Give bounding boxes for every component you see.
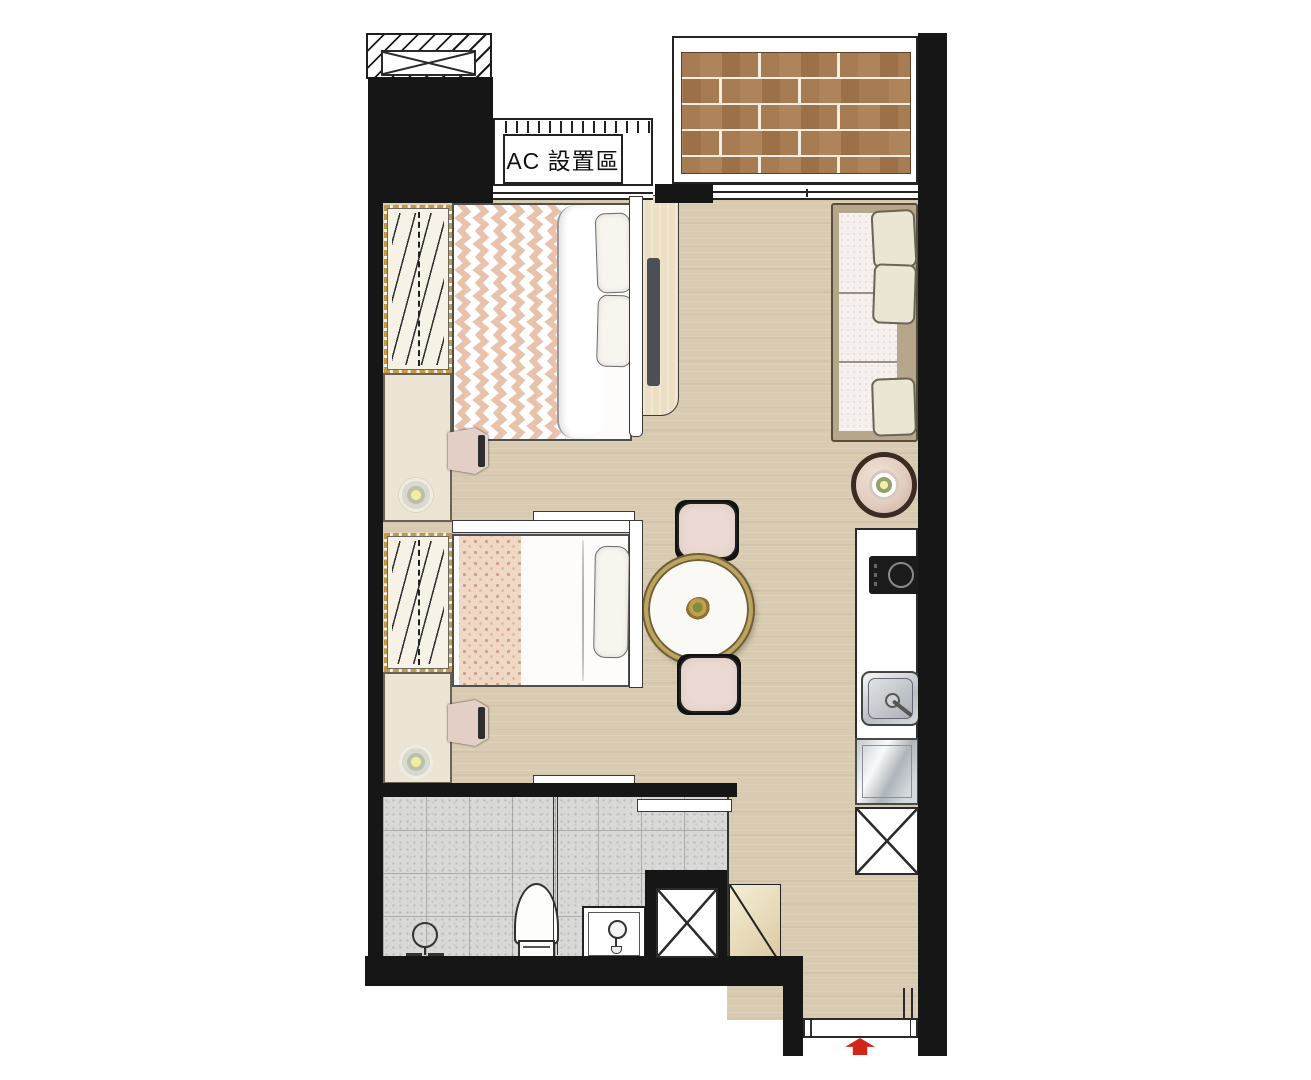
entry-door-frame-line-2	[911, 988, 913, 1018]
deck-plank-row	[682, 105, 910, 131]
dining-chair-top	[677, 502, 737, 559]
cooktop	[869, 556, 919, 594]
deck-plank-row	[682, 53, 910, 79]
deck-plank-row	[682, 131, 910, 157]
kitchen-x-cabinet	[855, 807, 919, 875]
vent-x-box	[381, 50, 476, 76]
bed-2-right-rail	[629, 520, 643, 688]
window-mullion	[806, 189, 808, 197]
sofa-pillow-2	[872, 263, 917, 324]
balcony	[672, 36, 918, 184]
door-stop-line	[910, 1020, 912, 1036]
shower-stem	[424, 947, 426, 955]
ac-grille-ticks	[505, 121, 651, 133]
bed-1-chevron-blanket	[454, 205, 566, 439]
balcony-deck	[681, 52, 911, 174]
bed-1-pillow-bottom	[596, 295, 633, 368]
wardrobe-2-rail	[418, 540, 420, 665]
ac-grille-line	[493, 118, 653, 120]
deck-plank-row	[682, 79, 910, 105]
cooktop-controls	[874, 564, 877, 586]
wardrobe-2	[384, 533, 452, 672]
wall-bottom	[365, 956, 803, 986]
bed-1-pillow-top	[595, 212, 633, 293]
dining-table-centerpiece	[686, 597, 712, 623]
entry-door-sill	[803, 1018, 918, 1038]
desk-lamp-2	[399, 745, 433, 779]
bed-2-pattern-blanket	[459, 536, 521, 685]
ac-recess-left-edge	[493, 120, 495, 186]
ac-area-label-box: AC 設置區	[503, 134, 623, 184]
window-glass-line	[493, 192, 653, 194]
shower-glass-partition	[553, 797, 558, 955]
bed-2-duvet-fold	[582, 540, 584, 681]
shower-head	[412, 922, 438, 948]
wardrobe-1-rail	[418, 212, 420, 366]
duct-shaft-x-box	[656, 888, 718, 958]
chair-2-back	[478, 707, 485, 738]
dining-table	[644, 555, 753, 664]
wall-left	[368, 203, 383, 956]
toilet-tank-line	[523, 946, 550, 948]
vanity-basin	[608, 920, 627, 939]
cushion-divider	[839, 361, 897, 363]
kitchen-sink	[861, 671, 920, 726]
desk-lamp-1	[398, 477, 434, 513]
ac-recess-right-edge	[651, 120, 653, 186]
tv-1	[647, 258, 660, 386]
chair-1-back	[478, 435, 485, 466]
side-table	[851, 452, 917, 518]
bathroom-door-leaf	[637, 799, 732, 812]
entry-arrow-icon	[845, 1038, 875, 1055]
vanity-sink	[582, 906, 646, 962]
wall-bathroom-top	[368, 783, 737, 797]
cooktop-burner-ring	[888, 562, 914, 588]
bed-1-side-rail	[629, 196, 643, 437]
fridge-top-panel	[862, 745, 912, 798]
entry-door-frame-line-1	[903, 988, 905, 1018]
chair-1	[448, 428, 488, 474]
door-stop-line	[810, 1020, 812, 1036]
sofa-pillow-3	[871, 377, 917, 437]
wardrobe-1	[384, 205, 452, 373]
bed-1	[452, 203, 632, 441]
wall-window-divider	[655, 184, 713, 203]
wall-right	[918, 33, 947, 1056]
dining-chair-bottom	[679, 656, 739, 713]
fridge	[855, 738, 919, 805]
entry-cabinet	[729, 884, 781, 964]
sofa-pillow-1	[871, 209, 918, 269]
deck-plank-row	[682, 157, 910, 174]
bed-2-pillow	[593, 546, 630, 659]
chair-2	[448, 700, 488, 746]
floor-plan: AC 設置區	[0, 0, 1311, 1080]
bed-2	[452, 534, 630, 687]
side-table-tray	[869, 470, 899, 500]
wall-entry-jamb	[783, 956, 803, 1056]
living-room-window	[711, 183, 918, 200]
window-glass-line	[711, 191, 918, 193]
bed-2-top-rail	[452, 520, 643, 533]
ac-area-label: AC 設置區	[506, 142, 619, 176]
wall-top-left-block	[368, 77, 493, 203]
